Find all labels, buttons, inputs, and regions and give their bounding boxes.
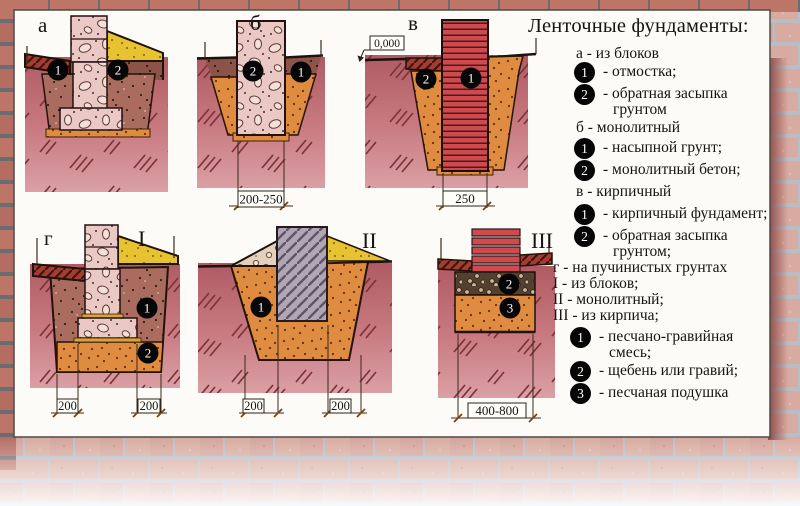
- legend-item-text: - щебень или гравий;: [599, 362, 738, 379]
- legend-item: 1 - кирпичный фундамент;: [574, 204, 774, 225]
- marker-badge-1: 1: [574, 138, 595, 159]
- poster-title: Ленточные фундаменты:: [528, 13, 774, 39]
- brick-courses: [472, 229, 520, 272]
- crushed-stone-layer: [455, 272, 535, 295]
- marker-1: 1: [251, 297, 272, 318]
- monolithic-column: [237, 21, 285, 135]
- foundation-footing: [60, 108, 122, 130]
- dimension-label: 250: [455, 191, 475, 206]
- marker-2: 2: [416, 69, 437, 90]
- dimension-label: 400-800: [475, 403, 518, 418]
- legend-item: 2 - монолитный бетон;: [574, 160, 774, 181]
- diagram-a-label: а: [38, 13, 48, 37]
- legend-section-a-heading: а - из блоков: [576, 45, 774, 62]
- svg-text:3: 3: [507, 301, 514, 316]
- dimension-label-right: 200: [331, 399, 350, 413]
- dimension-label-right: 200: [140, 399, 159, 413]
- legend-section-g-heading: г - на пучинистых грунтах: [553, 260, 774, 276]
- marker-2: 2: [108, 60, 129, 81]
- legend-item-text: - песчано-гравийная: [599, 328, 733, 345]
- marker-badge-1: 1: [574, 62, 595, 83]
- legend-section-b-heading: б - монолитный: [576, 119, 774, 136]
- foundation-block-mid: [85, 269, 120, 316]
- svg-text:1: 1: [258, 300, 265, 315]
- svg-text:2: 2: [506, 277, 513, 292]
- legend-item: 1 - отмостка;: [574, 62, 774, 83]
- svg-text:2: 2: [423, 72, 430, 87]
- poster-page: { "legend": { "title": "Ленточные фундам…: [0, 0, 800, 506]
- legend-item: 2 - обратная засыпка грунтом: [574, 84, 774, 118]
- svg-text:2: 2: [250, 64, 257, 79]
- svg-text:1: 1: [55, 63, 62, 78]
- svg-text:1: 1: [144, 301, 151, 316]
- svg-text:1: 1: [298, 65, 305, 80]
- legend-line-II: II - монолитный;: [553, 292, 774, 308]
- legend-panel: Ленточные фундаменты: а - из блоков 1 - …: [526, 10, 774, 404]
- legend-line-III: III - из кирпича;: [553, 308, 774, 324]
- legend-item-text: - кирпичный фундамент;: [603, 205, 767, 222]
- marker-2: 2: [499, 274, 520, 295]
- legend-item-text: - обратная засыпка: [603, 227, 728, 244]
- marker-2: 2: [138, 343, 159, 364]
- legend-item-text: - обратная засыпка: [603, 85, 728, 102]
- legend-line-I: I - из блоков;: [553, 276, 774, 292]
- marker-1: 1: [291, 62, 312, 83]
- legend-item-text: - песчаная подушка: [599, 384, 728, 401]
- marker-3: 3: [500, 298, 521, 319]
- marker-1: 1: [137, 298, 158, 319]
- monolithic-column: [277, 227, 327, 321]
- marker-badge-3: 3: [570, 383, 591, 404]
- legend-item-text-line2: смесь;: [599, 345, 733, 361]
- legend-item-text: - отмостка;: [603, 63, 676, 80]
- legend-item: 3 - песчаная подушка: [570, 383, 774, 404]
- svg-text:2: 2: [145, 346, 152, 361]
- bottom-fade: [0, 437, 800, 506]
- marker-badge-2: 2: [574, 160, 595, 181]
- diagram-I-label: I: [138, 226, 145, 251]
- sand-cushion-layer: [455, 295, 535, 332]
- marker-badge-1: 1: [570, 327, 591, 348]
- brick-column: [442, 20, 488, 171]
- legend-item-text: - насыпной грунт;: [603, 139, 722, 156]
- marker-badge-1: 1: [574, 204, 595, 225]
- marker-badge-2: 2: [574, 84, 595, 105]
- diagram-II-label: II: [362, 228, 377, 253]
- svg-text:0,000: 0,000: [374, 38, 400, 50]
- legend-item-text: - монолитный бетон;: [603, 161, 741, 178]
- legend-item: 2 - щебень или гравий;: [570, 361, 774, 382]
- foundation-footing: [78, 318, 137, 338]
- dimension-label-left: 200: [244, 399, 263, 413]
- legend-item-text-line2: грунтом;: [603, 244, 728, 260]
- dimension-label-left: 200: [58, 399, 77, 413]
- marker-1: 1: [48, 60, 69, 81]
- legend-section-v-heading: в - кирпичный: [576, 183, 774, 200]
- legend-item: 2 - обратная засыпка грунтом;: [574, 226, 774, 260]
- marker-badge-2: 2: [574, 226, 595, 247]
- diagram-v-label: в: [408, 11, 418, 35]
- marker-2: 2: [243, 61, 264, 82]
- legend-item: 1 - песчано-гравийная смесь;: [570, 327, 774, 361]
- marker-badge-2: 2: [570, 361, 591, 382]
- foundation-block-mid: [73, 62, 107, 109]
- diagram-b-label: б: [250, 11, 261, 35]
- legend-item-text-line2: грунтом: [603, 102, 728, 118]
- legend-item: 1 - насыпной грунт;: [574, 138, 774, 159]
- marker-1: 1: [461, 68, 482, 89]
- ground-strip-left: [438, 259, 472, 271]
- svg-text:2: 2: [115, 63, 122, 78]
- dimension-label: 200-250: [239, 192, 282, 207]
- diagram-g-label: г: [44, 226, 53, 250]
- svg-text:1: 1: [468, 71, 475, 86]
